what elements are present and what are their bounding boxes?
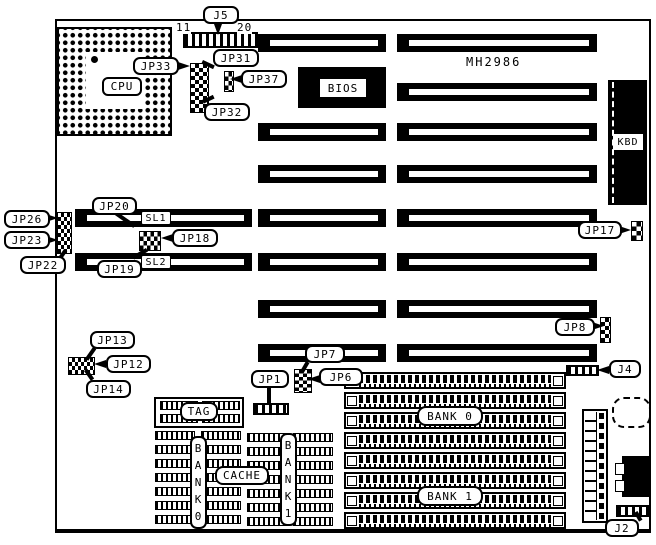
dip-socket [293, 475, 333, 484]
cache-bank0-vertical-label: BANK0 [190, 436, 207, 529]
jp20-callout: JP20 [92, 197, 137, 215]
jp1-callout: JP1 [251, 370, 289, 388]
jp33-callout: JP33 [133, 57, 179, 75]
isa-slot [397, 34, 597, 52]
cache-label: CACHE [215, 466, 269, 485]
isa-slot [397, 300, 597, 318]
dip-socket [201, 445, 241, 454]
oscillator-outline [612, 397, 651, 428]
jp37-callout: JP37 [241, 70, 287, 88]
edge-jumper-block [57, 212, 72, 254]
dip-socket [155, 445, 195, 454]
isa-slot [258, 300, 386, 318]
din-connector [622, 456, 651, 497]
dip-socket [293, 517, 333, 526]
jp1-pin-strip [253, 403, 289, 415]
isa-slot [258, 253, 386, 271]
isa-slot [397, 83, 597, 101]
isa-slot [258, 123, 386, 141]
jp6-callout: JP6 [319, 368, 363, 386]
jp19-callout: JP19 [97, 260, 142, 278]
dip-socket [155, 515, 195, 524]
jp32-callout: JP32 [204, 103, 250, 121]
jp23-callout: JP23 [4, 231, 50, 249]
jp12-pointer [94, 360, 106, 368]
dip-socket [293, 503, 333, 512]
jp31-callout: JP31 [213, 49, 259, 67]
j5-callout: J5 [203, 6, 239, 24]
dip-socket [293, 447, 333, 456]
jp18-callout: JP18 [172, 229, 218, 247]
simm-socket [344, 432, 566, 449]
j5-pin20-label: 20 [237, 21, 252, 34]
jp12-callout: JP12 [106, 355, 151, 373]
jp26-callout: JP26 [4, 210, 50, 228]
dip-socket [155, 487, 195, 496]
din-connector-tab-bottom [615, 480, 625, 492]
dip-socket [155, 501, 195, 510]
jp17-callout: JP17 [578, 221, 622, 239]
jp12-jumper-block [68, 357, 95, 375]
jp22-callout: JP22 [20, 256, 66, 274]
j5-pin11-label: 11 [176, 21, 191, 34]
bios-label: BIOS [320, 79, 366, 97]
isa-slot [258, 165, 386, 183]
model-number: MH2986 [466, 55, 521, 69]
tag-label: TAG [180, 402, 218, 421]
isa-slot [397, 253, 597, 271]
isa-slot [258, 209, 386, 227]
dip-socket [293, 489, 333, 498]
isa-slot [397, 344, 597, 362]
dip-socket [293, 433, 333, 442]
cpu-label: CPU [102, 77, 142, 96]
sl2-label: SL2 [141, 255, 171, 269]
dip-socket [201, 515, 241, 524]
dip-socket [155, 431, 195, 440]
cache-bank1-vertical-label: BANK1 [280, 433, 297, 526]
jp7-callout: JP7 [305, 345, 345, 363]
jp18-jumper-block [139, 231, 161, 251]
dip-socket [155, 473, 195, 482]
isa-slot [258, 34, 386, 52]
simm-socket [344, 372, 566, 389]
jp17-jumper-block [631, 221, 643, 241]
j2-pin-strip [616, 505, 650, 517]
isa-slot [397, 209, 597, 227]
motherboard-diagram: CPU 11 20 BIOS MH2986 KBD SL1 SL2 TAG CA… [0, 0, 656, 545]
jp8-jumper-block [600, 317, 611, 343]
j5-pointer [214, 24, 222, 35]
dip-socket [201, 501, 241, 510]
bank0-label: BANK 0 [417, 406, 483, 426]
isa-slot [397, 165, 597, 183]
simm-socket [344, 512, 566, 529]
din-connector-tab-top [615, 463, 625, 475]
dip-socket [201, 431, 241, 440]
j2-callout: J2 [605, 519, 639, 537]
jp33-pointer [178, 62, 190, 70]
cpu-pin1-dot [91, 56, 98, 63]
dip-socket [155, 459, 195, 468]
jp13-callout: JP13 [90, 331, 135, 349]
simm-socket [344, 452, 566, 469]
jp8-callout: JP8 [555, 318, 595, 336]
j4-pin-strip [566, 365, 599, 376]
isa-slot [397, 123, 597, 141]
j4-callout: J4 [609, 360, 641, 378]
dip-socket [201, 487, 241, 496]
sl1-label: SL1 [141, 211, 171, 225]
sip-resistor-column [582, 409, 608, 523]
j4-pointer [597, 366, 609, 374]
dip-socket [293, 461, 333, 470]
bank1-label: BANK 1 [417, 486, 483, 506]
jp1-pointer [267, 387, 271, 404]
kbd-label: KBD [613, 134, 643, 150]
jp14-callout: JP14 [86, 380, 131, 398]
